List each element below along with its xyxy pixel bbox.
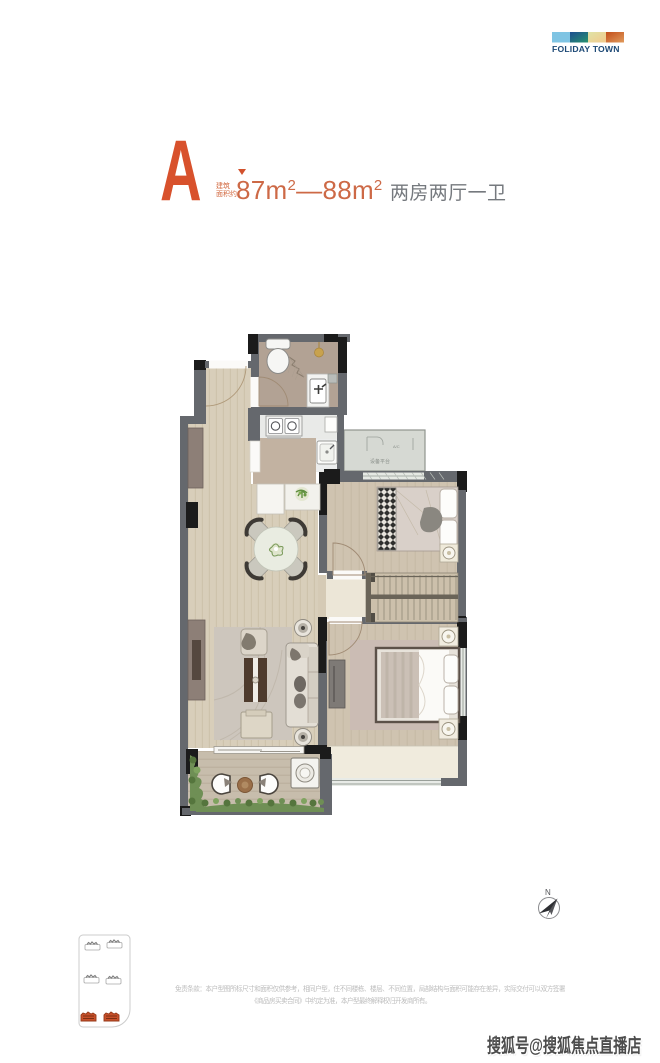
svg-text:N: N (545, 888, 551, 897)
svg-text:设备平台: 设备平台 (370, 458, 390, 465)
svg-text:A/C: A/C (393, 444, 400, 449)
